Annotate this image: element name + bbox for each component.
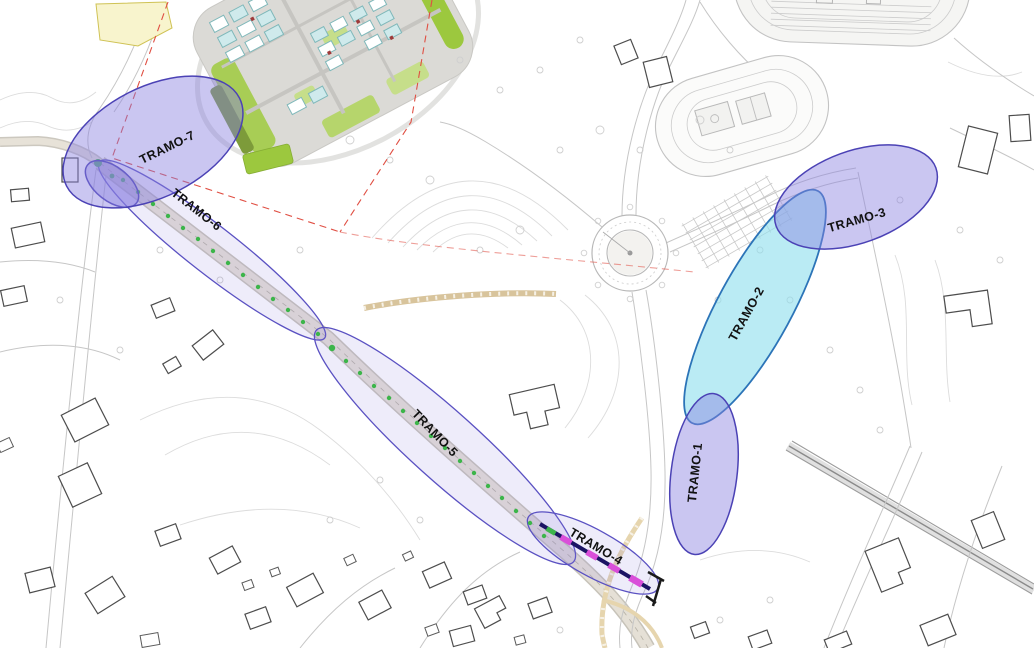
velodrome	[644, 44, 841, 189]
plan-viewport: TRAMO-7 TRAMO-6 TRAMO-5 TRAMO-4 TRAMO-1 …	[0, 0, 1034, 648]
athletics-track	[732, 0, 972, 48]
yellow-building	[96, 2, 172, 46]
roundabout	[581, 204, 679, 302]
site-plan-map: TRAMO-7 TRAMO-6 TRAMO-5 TRAMO-4 TRAMO-1 …	[0, 0, 1034, 648]
tramo-1-area	[661, 390, 746, 559]
